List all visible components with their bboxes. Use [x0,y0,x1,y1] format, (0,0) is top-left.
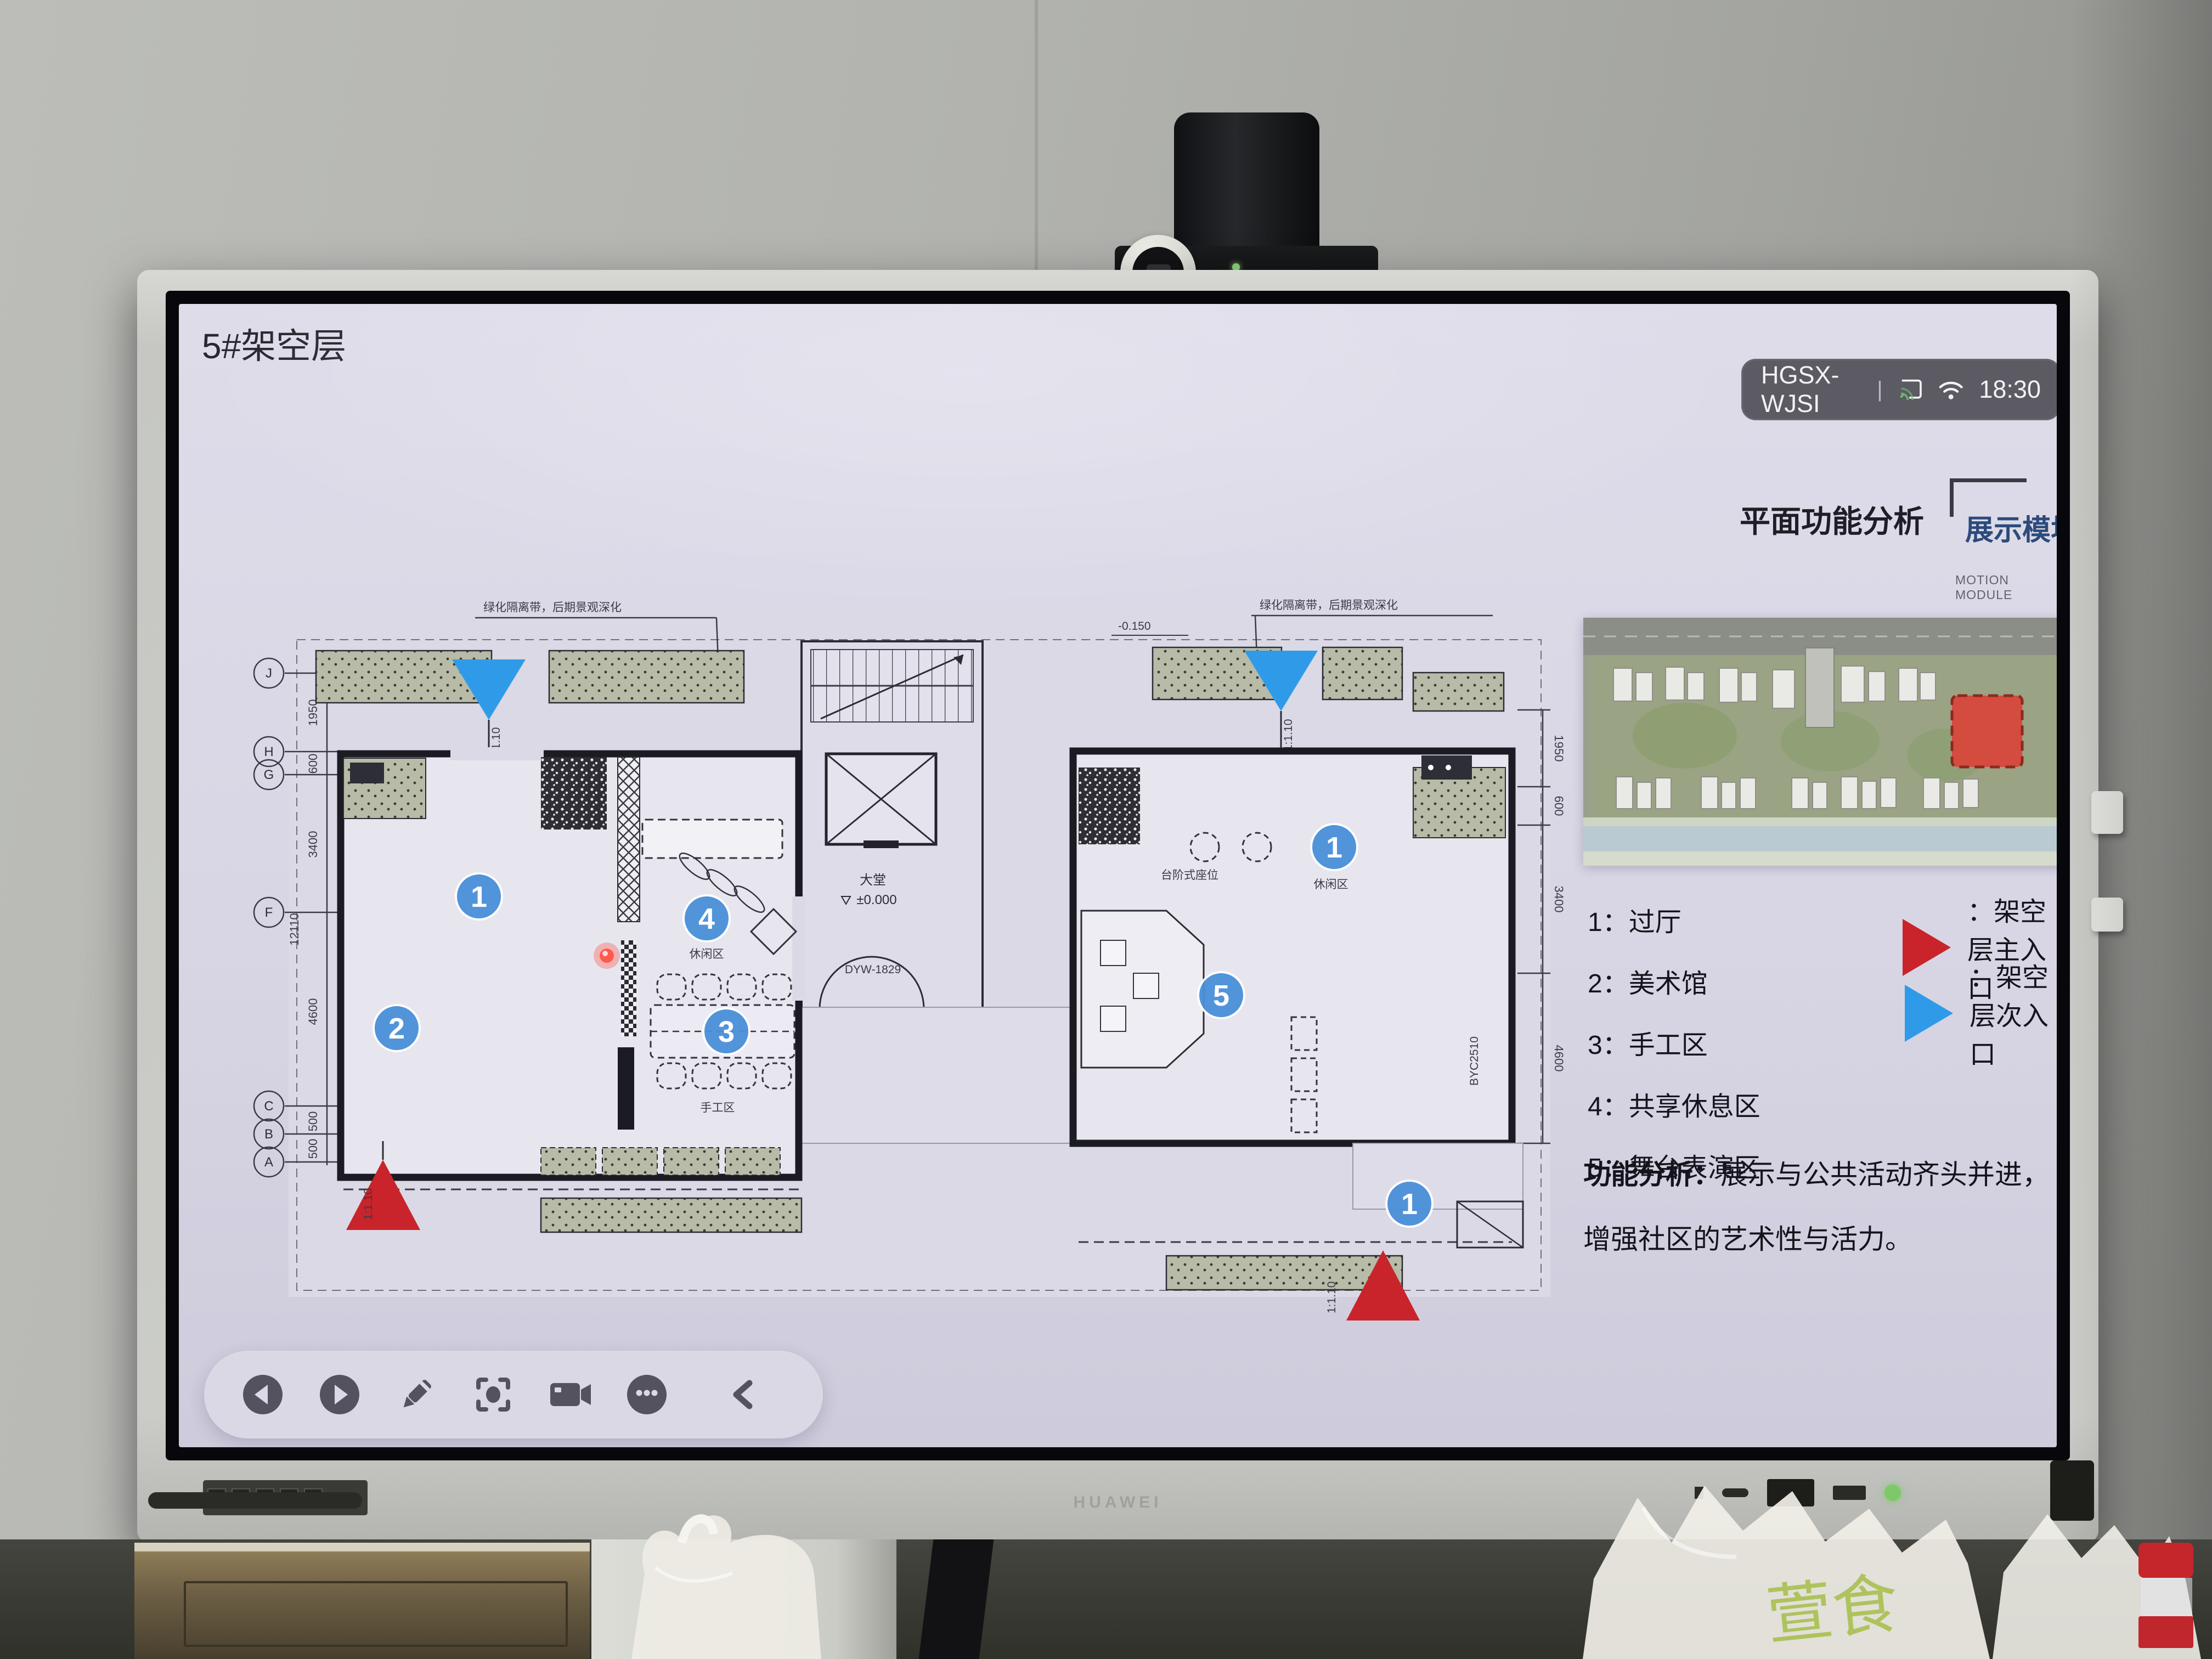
legend-secondary-entrance: ：架空层次入口 [1905,956,2057,1071]
legend-item: 2：美术馆 [1588,950,1760,1012]
bottle-body [2141,1578,2192,1616]
more-button[interactable] [617,1364,677,1425]
site-highlight-building-5 [1952,696,2022,767]
svg-text:500: 500 [306,1139,320,1159]
svg-text:F: F [265,905,273,920]
floor-plan-drawing: J H G F C B A 1950 600 3400 12110 4600 [234,589,1567,1327]
seating-label: 台阶式座位 [1161,869,1218,882]
screenshot-button[interactable] [463,1364,523,1425]
svg-text:4600: 4600 [306,998,320,1025]
module-tag-frame: 展示模块 MOTION MODULE [1950,478,2057,614]
video-camera-icon [545,1371,595,1418]
svg-text:600: 600 [306,754,320,774]
svg-text:休闲区: 休闲区 [690,948,724,961]
svg-text:H: H [264,744,273,759]
svg-text:±0.000: ±0.000 [856,893,896,907]
legend-item: 3：手工区 [1588,1012,1760,1073]
status-bar[interactable]: HGSX-WJSI | 18:30 [1741,359,2057,420]
svg-text:休闲区: 休闲区 [1314,878,1348,891]
legend-item: 4：共享休息区 [1588,1073,1760,1135]
marker-1-left: 1 [456,873,502,919]
screen-frame: 5#架空层 HGSX-WJSI | 18:30 [166,291,2070,1460]
analysis-text: 功能分析：展示与公共活动齐头并进， 增强社区的艺术性与活力。 [1583,1142,2057,1272]
svg-text:12110: 12110 [287,913,301,946]
svg-text:1:1.10: 1:1.10 [1282,719,1295,751]
grid-letters: J H G F C B A [264,666,274,1170]
svg-text:DYW-1829: DYW-1829 [845,963,901,976]
svg-text:1:1.10: 1:1.10 [1325,1282,1338,1313]
svg-text:绿化隔离带，后期景观深化: 绿化隔离带，后期景观深化 [1260,599,1398,612]
wooden-cabinet [134,1543,590,1659]
marker-5: 5 [1198,972,1244,1018]
svg-text:1:1.10: 1:1.10 [362,1188,375,1220]
marker-4: 4 休闲区 [684,895,730,961]
cast-icon [1897,372,1923,407]
previous-icon [239,1371,286,1418]
svg-text:4: 4 [698,902,715,935]
svg-text:5: 5 [1213,979,1229,1012]
svg-text:2: 2 [388,1012,405,1045]
next-page-button[interactable] [309,1364,370,1425]
level-minus-label: -0.150 [1118,620,1151,633]
byc-label: BYC2510 [1468,1036,1481,1086]
svg-text:3: 3 [718,1015,735,1048]
marker-1-right-bottom: 1 [1386,1181,1432,1227]
clock: 18:30 [1979,375,2041,404]
svg-text:J: J [266,666,272,681]
more-icon [623,1371,670,1418]
annotation-toolbar[interactable] [204,1351,823,1438]
pen-icon [393,1371,440,1418]
svg-text:1: 1 [1401,1188,1418,1221]
svg-text:1: 1 [1326,831,1342,864]
craft-area-label: 手工区 [701,1102,735,1114]
interactive-whiteboard: 5#架空层 HGSX-WJSI | 18:30 [137,270,2098,1543]
panel-heading: 平面功能分析 [1740,497,1924,541]
left-room-block: 手工区 [341,747,805,1177]
speaker-slot [148,1492,362,1509]
svg-text:3400: 3400 [1552,886,1566,913]
svg-text:A: A [264,1155,273,1170]
touch-screen[interactable]: 5#架空层 HGSX-WJSI | 18:30 [179,304,2057,1447]
cabinet-drawer [184,1581,568,1647]
status-divider: | [1877,377,1882,402]
svg-text:4600: 4600 [1552,1045,1566,1072]
plastic-bag-center [595,1502,930,1659]
brand-logo: HUAWEI [1074,1493,1163,1512]
slide-title: 5#架空层 [202,318,346,369]
laser-pointer-dot [594,943,620,969]
module-tag-subtitle: MOTION MODULE [1955,573,2012,602]
legend-item: 1：过厅 [1588,889,1760,950]
svg-text:3400: 3400 [306,831,320,858]
bottle-label [2138,1616,2193,1648]
photo-scene: 5#架空层 HGSX-WJSI | 18:30 [0,0,2212,1659]
marker-3: 3 [703,1008,749,1054]
next-icon [316,1371,363,1418]
svg-text:500: 500 [306,1111,320,1132]
svg-text:B: B [264,1127,273,1142]
svg-text:C: C [264,1099,273,1114]
module-tag-label: 展示模块 [1965,507,2057,548]
previous-page-button[interactable] [233,1364,293,1425]
bag-brand-text: 萱食 [1763,1567,1902,1654]
screenshot-icon [470,1371,517,1418]
svg-text:600: 600 [1552,796,1566,816]
svg-text:1: 1 [471,881,487,913]
record-button[interactable] [540,1364,600,1425]
device-name: HGSX-WJSI [1761,361,1863,418]
site-plan-image [1583,618,2057,866]
svg-text:1950: 1950 [1552,735,1566,762]
wall-corner-line [1035,0,1038,296]
collapse-toolbar-button[interactable] [713,1364,774,1425]
chevron-left-icon [724,1371,763,1418]
bottle-cap [2138,1543,2193,1578]
svg-text:绿化隔离带，后期景观深化: 绿化隔离带，后期景观深化 [483,601,622,614]
site-buildings-bottom [1616,777,1978,809]
pen-button[interactable] [386,1364,447,1425]
marker-2: 2 [374,1005,420,1051]
blue-triangle-icon [1905,985,1953,1042]
wall-shadow [2069,0,2212,1659]
svg-text:大堂: 大堂 [860,873,886,888]
display-stand-leg [919,1539,994,1659]
svg-text:G: G [264,768,274,782]
wifi-icon [1937,373,1965,406]
